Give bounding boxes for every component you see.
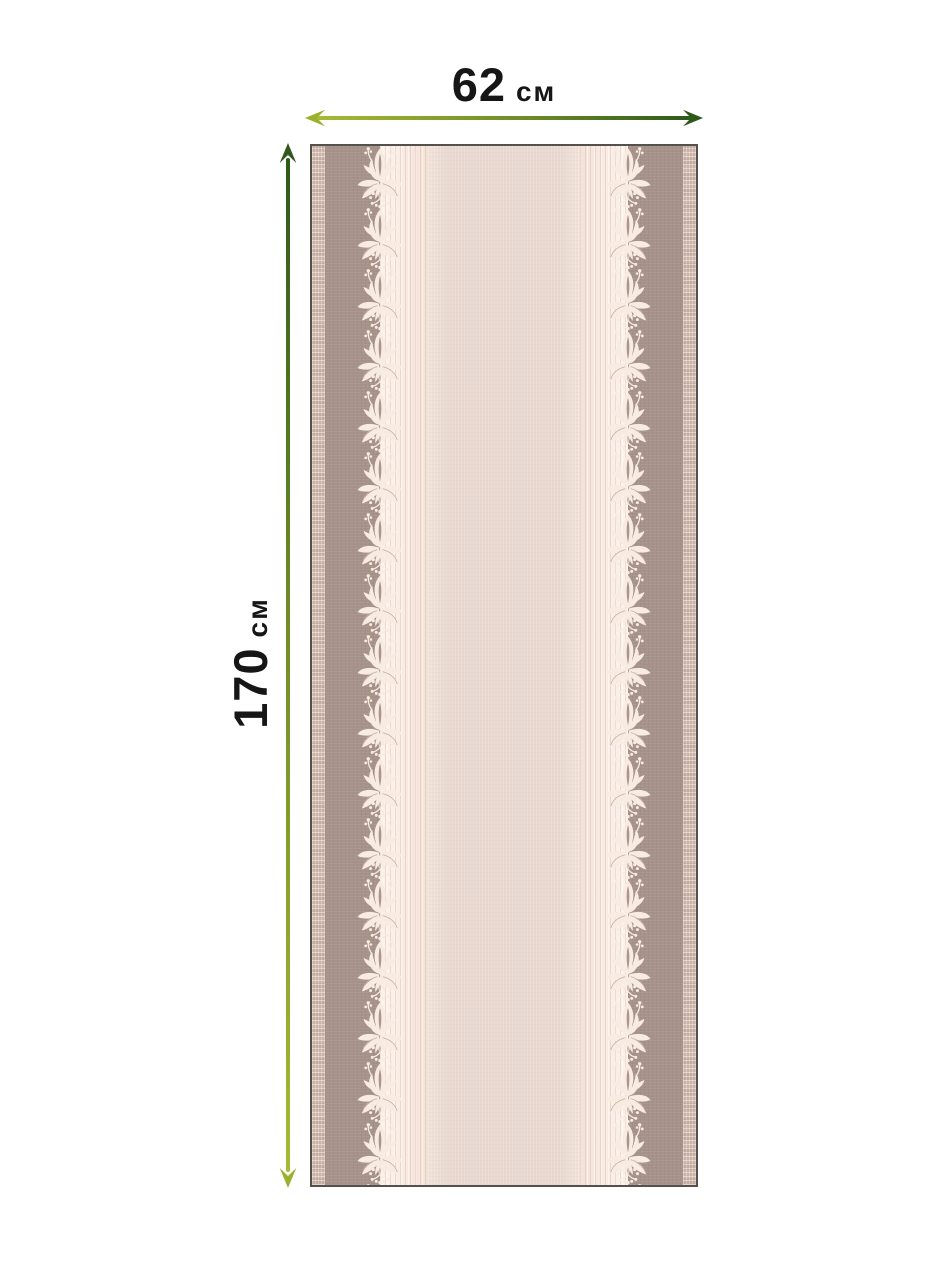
width-value: 62 [452, 58, 506, 111]
selvage-right [683, 146, 696, 1185]
height-arrow-line [286, 158, 290, 1172]
height-dimension-label: 170см [224, 553, 278, 773]
product-dimension-diagram: 62см 170см [0, 0, 950, 1266]
height-value: 170 [224, 647, 277, 728]
width-dimension-label: 62см [310, 60, 698, 110]
center-panel [428, 146, 580, 1185]
width-arrow-line [317, 116, 691, 120]
fabric-swatch [310, 144, 698, 1187]
selvage-left [312, 146, 325, 1185]
width-unit: см [516, 76, 556, 107]
floral-border-right [604, 146, 652, 1185]
height-unit: см [242, 597, 273, 637]
floral-border-left [356, 146, 404, 1185]
